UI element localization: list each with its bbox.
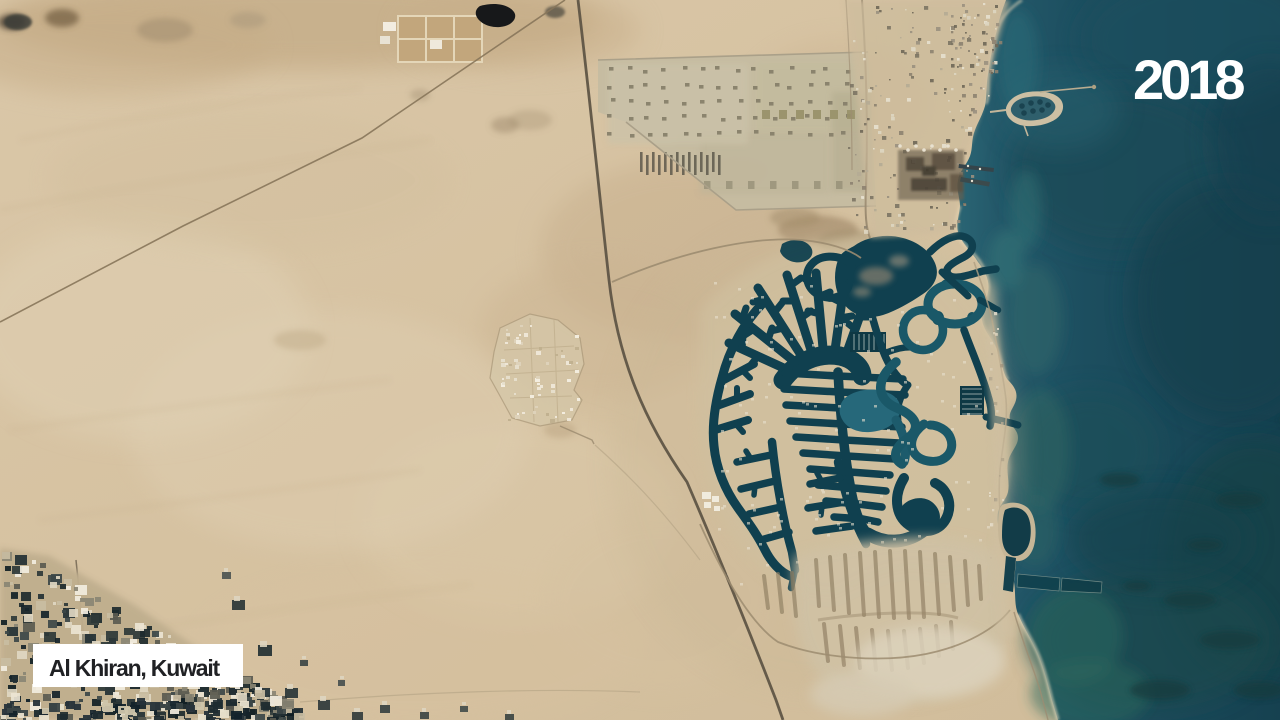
svg-text:Al Khiran, Kuwait: Al Khiran, Kuwait [49, 655, 221, 681]
svg-text:2018: 2018 [1133, 48, 1244, 111]
